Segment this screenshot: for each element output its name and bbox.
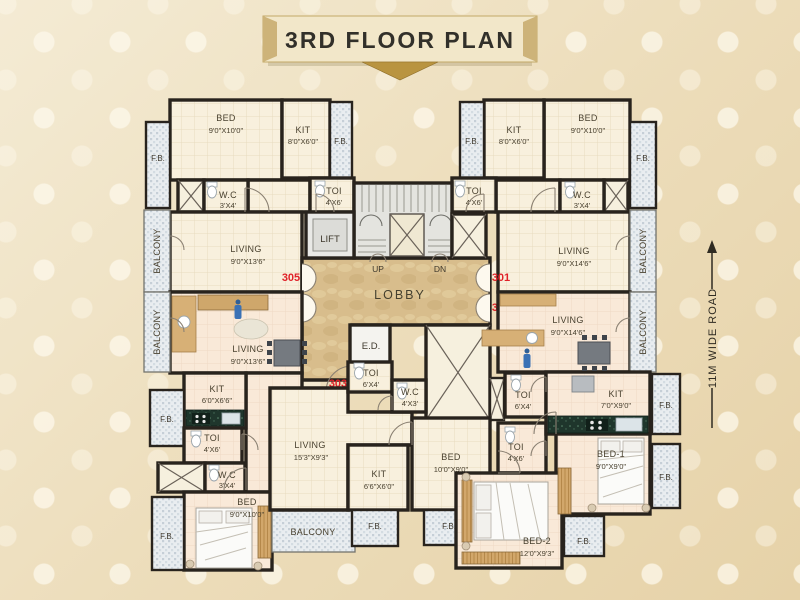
toilet-icon — [207, 182, 217, 198]
label-living-302: LIVING — [552, 315, 583, 325]
person-icon — [236, 300, 241, 305]
passage-301 — [496, 180, 560, 212]
label-fb-305-kit: F.B. — [334, 137, 348, 146]
sink-icon — [222, 413, 240, 424]
label-ed: E.D. — [362, 341, 380, 352]
toilet-icon — [455, 181, 465, 197]
fb-shaft-302-bed2 — [564, 516, 604, 556]
banner-edge-left — [263, 16, 277, 62]
label-fb-301-kit: F.B. — [465, 137, 479, 146]
toilet-icon — [505, 427, 515, 443]
label-fb-303-b: F.B. — [442, 522, 456, 531]
label-living-304: LIVING — [232, 344, 263, 354]
desk-icon — [198, 295, 268, 310]
label-fb-301-right: F.B. — [636, 154, 650, 163]
label-balcony-302: BALCONY — [638, 309, 648, 354]
label-kit-303: KIT — [372, 469, 387, 479]
label-balcony-301: BALCONY — [638, 228, 648, 273]
door-arc-wc-303 — [378, 396, 392, 410]
label-bed1-302: BED-1 — [597, 449, 625, 459]
label-kit-304: KIT — [210, 384, 225, 394]
dims-living-303: 15'3"X9'3" — [294, 453, 329, 462]
dining-table-icon — [274, 340, 300, 366]
passage-305 — [248, 180, 310, 212]
dims-living-302: 9'0"X14'6" — [551, 328, 586, 337]
label-toi-305: TOI — [326, 186, 342, 196]
label-kit-302: KIT — [609, 389, 624, 399]
fb-shaft-301-right — [630, 122, 656, 208]
road-marker: 11M WIDE ROAD — [707, 240, 719, 428]
label-living-303: LIVING — [294, 440, 325, 450]
dims-bed-301: 9'0"X10'0" — [571, 126, 606, 135]
dims-bed2-302: 12'0"X9'3" — [520, 549, 555, 558]
label-lift: LIFT — [320, 234, 340, 245]
sink-icon — [616, 418, 642, 431]
dims-bed-305: 9'0"X10'0" — [209, 126, 244, 135]
dims-kit-302: 7'0"X9'0" — [601, 401, 632, 410]
dims-toi-304: 4'X6' — [204, 445, 221, 454]
fb-shaft-305-left — [146, 122, 170, 208]
floor-plan-page: 3RD FLOOR PLAN 11M WIDE ROAD BED 9'0"X10… — [0, 0, 800, 600]
label-fb-304-bed: F.B. — [160, 532, 174, 541]
label-bed2-302: BED-2 — [523, 536, 551, 546]
person-icon — [524, 354, 531, 368]
dims-bed1-302: 9'0"X9'0" — [596, 462, 627, 471]
label-toi-304: TOI — [204, 433, 220, 443]
label-wc-305: W.C — [219, 190, 237, 200]
label-toi-303: TOI — [363, 368, 379, 378]
banner-edge-right — [523, 16, 537, 62]
label-fb-304-kit: F.B. — [160, 415, 174, 424]
label-balcony-304-side: BALCONY — [152, 309, 162, 354]
label-wc-301: W.C — [573, 190, 591, 200]
label-living-305: LIVING — [230, 244, 261, 254]
rug-icon — [234, 319, 268, 339]
hob-icon — [192, 413, 210, 424]
dims-wc-305: 3'X4' — [220, 201, 237, 210]
dims-bed-304: 9'0"X10'0" — [230, 510, 265, 519]
label-bed-301: BED — [578, 113, 598, 123]
label-wc-303: W.C — [401, 387, 419, 397]
page-title: 3RD FLOOR PLAN — [285, 27, 515, 53]
dims-wc-303: 4'X3' — [402, 399, 419, 408]
banner-chevron — [362, 62, 438, 80]
label-fb-302-kit: F.B. — [659, 401, 673, 410]
label-bed-303: BED — [441, 452, 461, 462]
label-dn: DN — [434, 264, 446, 274]
room-bed-305 — [170, 100, 282, 180]
sideboard-icon — [500, 294, 556, 306]
label-balcony-305: BALCONY — [152, 228, 162, 273]
dims-wc-304: 3'X4' — [219, 481, 236, 490]
toilet-icon — [191, 431, 201, 447]
dims-kit-305: 8'0"X6'0" — [288, 137, 319, 146]
label-kit-305: KIT — [296, 125, 311, 135]
label-bed-304: BED — [237, 497, 257, 507]
dims-kit-304: 6'0"X6'6" — [202, 396, 233, 405]
washbasin-icon — [527, 333, 538, 344]
label-living-301: LIVING — [558, 246, 589, 256]
dims-toi-302a: 6'X4' — [515, 402, 532, 411]
label-toi-302a: TOI — [515, 390, 531, 400]
dims-kit-301: 8'0"X6'0" — [499, 137, 530, 146]
title-banner: 3RD FLOOR PLAN — [263, 16, 537, 80]
fridge-icon — [572, 376, 594, 392]
label-bed-305: BED — [216, 113, 236, 123]
room-bed-301 — [544, 100, 630, 180]
label-fb-303-a: F.B. — [368, 522, 382, 531]
label-kit-301: KIT — [507, 125, 522, 135]
hob-icon — [586, 419, 608, 431]
dims-wc-301: 3'X4' — [574, 201, 591, 210]
person-icon — [525, 349, 530, 354]
wardrobe-icon — [558, 468, 571, 514]
person-icon — [235, 305, 242, 319]
toilet-icon — [511, 375, 521, 391]
dims-living-305: 9'0"X13'6" — [231, 257, 266, 266]
label-balcony-304-bottom: BALCONY — [290, 527, 335, 537]
label-lobby: LOBBY — [374, 288, 426, 302]
label-toi-302b: TOI — [508, 442, 524, 452]
label-fb-302-bed1: F.B. — [659, 473, 673, 482]
label-up: UP — [372, 264, 384, 274]
label-fb-302-bed2: F.B. — [577, 537, 591, 546]
dims-kit-303: 6'6"X6'0" — [364, 482, 395, 491]
floor-plan-svg: 3RD FLOOR PLAN 11M WIDE ROAD BED 9'0"X10… — [0, 0, 800, 600]
unit-number-305: 305 — [282, 272, 300, 284]
dims-toi-303: 6'X4' — [363, 380, 380, 389]
dims-living-304: 9'0"X13'6" — [231, 357, 266, 366]
dining-table-icon — [578, 342, 610, 364]
unit-number-301: 301 — [492, 272, 510, 284]
road-arrow-icon — [707, 240, 717, 253]
label-fb-305-left: F.B. — [151, 154, 165, 163]
road-label: 11M WIDE ROAD — [707, 288, 719, 388]
dims-living-301: 9'0"X14'6" — [557, 259, 592, 268]
